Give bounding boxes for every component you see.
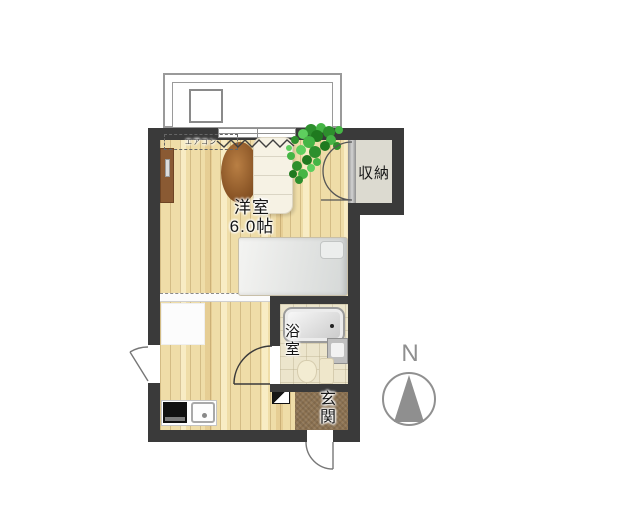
left-door-opening xyxy=(148,345,160,383)
entrance-door-opening xyxy=(307,430,333,442)
kitchen-sink xyxy=(191,402,215,423)
bathroom-door-opening xyxy=(270,346,280,384)
floor-plan: エアコン 洋室 6.0帖 収納 浴室 玄関 N xyxy=(0,0,640,512)
plant-icon xyxy=(281,122,345,188)
stove xyxy=(163,402,187,423)
storage-label: 収納 xyxy=(352,162,396,183)
main-room-size: 6.0帖 xyxy=(212,217,292,236)
refrigerator-space xyxy=(161,303,205,345)
wall-right xyxy=(348,203,360,442)
compass-circle xyxy=(382,372,436,426)
wall-storage-bottom xyxy=(348,203,404,215)
washing-machine-pad xyxy=(189,89,223,123)
main-room-name: 洋室 xyxy=(212,198,292,217)
wall-left xyxy=(148,128,160,442)
wardrobe-panel xyxy=(160,148,174,203)
main-room-label: 洋室 6.0帖 xyxy=(212,198,292,236)
wall-bathroom-top xyxy=(270,296,360,304)
bathroom-label: 浴室 xyxy=(281,323,302,359)
aircon-label: エアコン xyxy=(185,137,217,147)
aircon-outline: エアコン xyxy=(164,134,238,150)
wardrobe-handle xyxy=(165,159,170,177)
entrance-door-swing xyxy=(306,442,333,469)
pillow xyxy=(320,241,344,259)
entrance-label: 玄関 xyxy=(313,390,337,426)
left-door-swing xyxy=(130,347,148,381)
toilet-bowl xyxy=(297,360,317,383)
compass-north-label: N xyxy=(396,340,424,368)
bed xyxy=(238,237,348,296)
toilet-tank xyxy=(319,358,334,384)
